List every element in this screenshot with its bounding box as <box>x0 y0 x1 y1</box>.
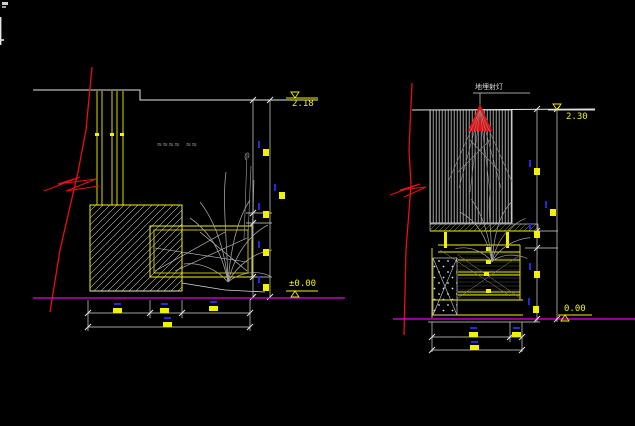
stepped-planter <box>432 245 523 318</box>
cad-canvas[interactable]: 2.18 ±0.00 ≈≈≈≈ ≈≈ 地埋射灯 2.30 0.00 <box>0 0 635 426</box>
break-line-right <box>390 83 426 335</box>
dim-value-blobs <box>533 168 556 313</box>
left-elevation-top-value: 2.18 <box>292 100 314 109</box>
dim-value-blobs <box>263 149 285 291</box>
fixture-leader <box>473 93 530 106</box>
right-elevation-view <box>390 83 635 353</box>
dotted-pier <box>433 258 457 315</box>
left-bottom-dimensions <box>85 300 253 331</box>
ground-slope-line <box>182 283 265 292</box>
right-elevation-top-value: 2.30 <box>566 113 588 122</box>
window-edge-artifact <box>1 2 8 45</box>
water-ripple-annotation: ≈≈≈≈ ≈≈ <box>157 141 198 149</box>
right-vertical-dimensions <box>525 106 560 322</box>
right-bottom-dimensions <box>429 322 525 353</box>
masonry-base-block <box>90 205 182 291</box>
right-elevation-bottom-value: 0.00 <box>564 305 586 314</box>
wall-post-lines <box>97 91 123 205</box>
level-mark-000 <box>286 291 318 297</box>
fixture-label: 地埋射灯 <box>475 84 503 91</box>
top-profile-line <box>33 90 318 100</box>
level-mark-000r <box>558 315 592 321</box>
wall-grip-marks <box>95 133 124 136</box>
dim-value-blobs <box>113 306 218 327</box>
support-posts <box>444 232 509 248</box>
cad-linework <box>0 0 635 426</box>
level-mark-218 <box>286 92 318 98</box>
left-elevation-bottom-value: ±0.00 <box>289 280 316 289</box>
plant-grass-clump <box>184 153 272 282</box>
